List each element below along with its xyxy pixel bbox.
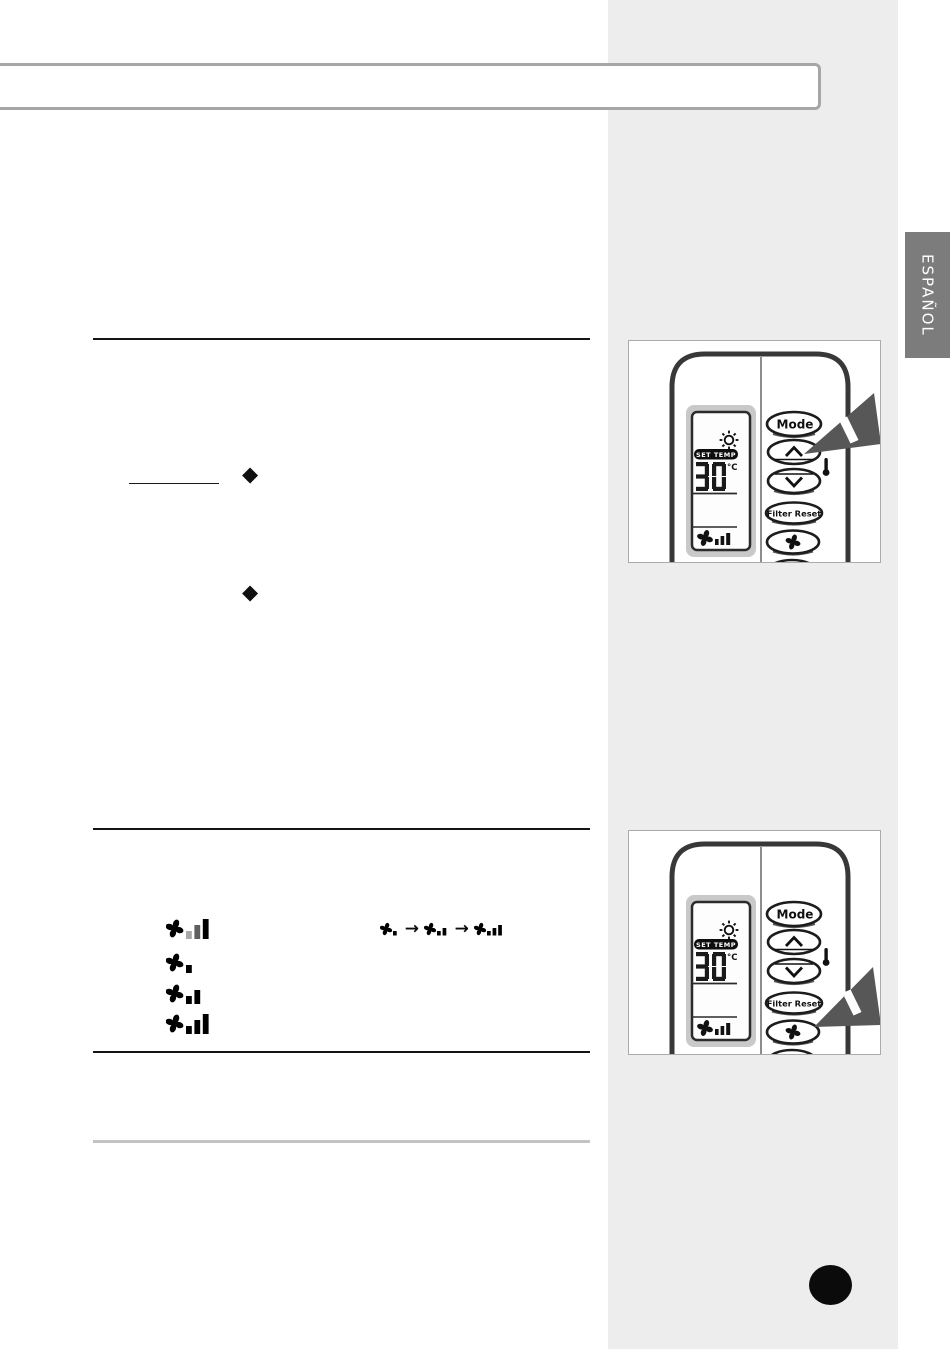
fan-icon [424,922,437,935]
temp-up-button [768,930,820,954]
fan-speed-bar [186,1026,192,1034]
fan-speed-bar [498,925,502,935]
footer-divider [93,1140,590,1143]
language-tab: ESPAÑOL [905,232,950,358]
section-divider-top [93,338,590,340]
fan-speed-bar [194,925,200,939]
fan-speed-bar [194,1020,200,1034]
section-divider-middle [93,828,590,830]
fan-speed-bar [393,931,397,935]
fan-speed-bar [487,931,491,935]
fan-icon [166,953,184,973]
mode-button-label: Mode [777,418,814,432]
set-temp-label: SET TEMP [696,941,736,949]
remote-figure-press-fan-speed: SET TEMP°CModeFilter Reset [628,830,881,1055]
remote-figure-press-temp-up: SET TEMP°CModeFilter Reset [628,340,881,563]
fan-speed-bar [186,931,192,939]
fan-icon [166,984,184,1004]
fan-speed-bar [186,996,192,1004]
arrow-right-icon: → [405,921,419,938]
fan-speed-mini-icon [474,921,505,940]
set-temp-label: SET TEMP [696,451,736,459]
filter-reset-button-label: Filter Reset [767,998,822,1008]
lcd-screen [692,412,750,550]
manual-page: ESPAÑOL ◆ ◆ →→ SET TEMP°CModeFilter Rese… [0,0,950,1349]
fan-speed-bar [443,928,447,935]
fan-icon [380,922,393,935]
fan-speed-bar [492,928,496,935]
fan-speed-low [166,951,212,977]
right-sidebar-panel [608,0,898,1349]
fan-speed-indicator-animated [166,917,212,943]
fan-speed-medium [166,982,212,1008]
lcd-screen [692,902,750,1040]
fan-speed-mini-icon [380,921,400,940]
title-banner [0,63,821,110]
temp-down-button [768,469,820,493]
temp-down-button [768,959,820,983]
heading-underline [129,483,219,484]
arrow-right-icon: → [455,921,469,938]
fan-speed-cycle-sequence: →→ [380,921,505,940]
diamond-bullet-icon: ◆ [242,582,258,603]
fan-icon [166,919,184,939]
page-number-dot [809,1265,852,1305]
fan-icon [166,1014,184,1034]
diamond-bullet-icon: ◆ [242,464,258,485]
fan-speed-high [166,1012,212,1038]
fan-speed-bar [437,931,441,935]
filter-reset-button-label: Filter Reset [767,508,822,518]
temp-unit-label: °C [727,953,738,963]
fan-speed-bar [186,965,192,973]
fan-speed-bar [194,990,200,1004]
section-divider-bottom [93,1051,590,1053]
mode-button-label: Mode [777,908,814,922]
language-tab-label: ESPAÑOL [919,254,937,337]
fan-speed-bar [203,919,209,939]
fan-speed-mini-icon [424,921,450,940]
fan-icon [474,922,487,935]
temp-unit-label: °C [727,463,738,473]
fan-speed-bar [203,1014,209,1034]
